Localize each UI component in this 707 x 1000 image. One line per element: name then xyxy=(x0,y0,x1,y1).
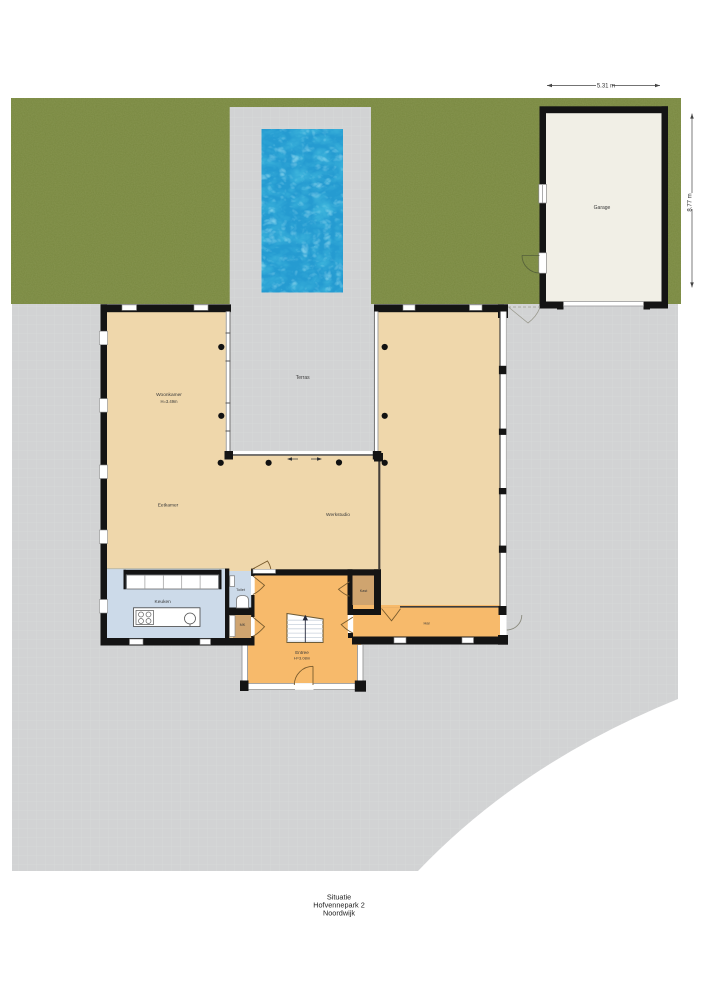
svg-text:8.77 m: 8.77 m xyxy=(688,193,694,211)
svg-text:Garage: Garage xyxy=(594,205,611,211)
svg-text:Werkstudio: Werkstudio xyxy=(326,512,350,518)
svg-text:H=3.08m: H=3.08m xyxy=(294,656,311,661)
svg-text:Entree: Entree xyxy=(295,650,309,655)
svg-text:5.31 m: 5.31 m xyxy=(597,84,615,90)
svg-text:Kast: Kast xyxy=(360,589,369,593)
svg-text:Keuken: Keuken xyxy=(155,599,172,605)
svg-text:Woonkamer: Woonkamer xyxy=(156,392,182,398)
svg-text:Noordwijk: Noordwijk xyxy=(323,909,355,918)
svg-text:Terras: Terras xyxy=(296,375,310,381)
svg-text:Hal: Hal xyxy=(423,621,429,626)
svg-text:MK: MK xyxy=(240,623,246,627)
svg-text:Eetkamer: Eetkamer xyxy=(158,503,179,509)
svg-text:H=3.49m: H=3.49m xyxy=(160,399,178,404)
svg-text:Toilet: Toilet xyxy=(236,588,246,592)
